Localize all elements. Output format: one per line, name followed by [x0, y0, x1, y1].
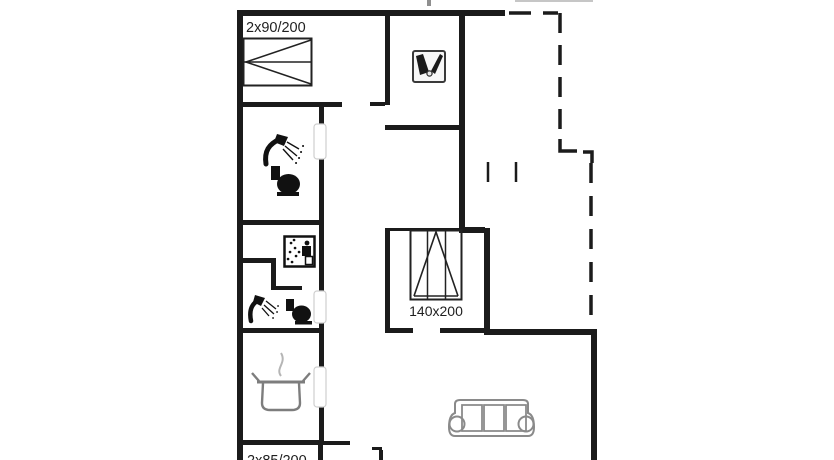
bed-frame — [411, 231, 462, 300]
shower-head — [274, 134, 288, 146]
dash-corner-2 — [583, 152, 592, 163]
sauna-stove — [306, 257, 313, 265]
dashed-boundary — [509, 13, 592, 328]
floor-plan-canvas: 2x90/200 — [0, 0, 834, 460]
door-kitchen — [314, 367, 326, 407]
sofa-cushions — [462, 405, 526, 431]
toilet-tank — [271, 166, 280, 180]
cutoff-mark — [427, 0, 431, 6]
double-bed-icon — [244, 39, 312, 86]
room-kitchen — [243, 333, 319, 439]
room-bathroom-1 — [243, 108, 319, 218]
toilet-icon — [271, 166, 300, 196]
door-bathroom-1 — [314, 124, 326, 159]
shower-spray — [262, 301, 276, 316]
bed-size-label-middle: 140x200 — [409, 303, 463, 319]
bed-side-lines — [428, 231, 446, 299]
door-bathroom-2 — [314, 291, 326, 323]
sauna-person-body — [302, 246, 311, 256]
toilet-bowl — [292, 306, 311, 323]
opening-ticks — [488, 162, 516, 182]
bed-size-label-bottom-clipped: 2x85/200 — [247, 453, 307, 460]
double-bed-icon-2 — [411, 231, 462, 300]
floor-plan: 2x90/200 — [0, 0, 834, 460]
toilet-icon-2 — [286, 299, 312, 325]
toilet-bowl — [277, 174, 300, 194]
shower-spray — [283, 142, 299, 160]
cutoff-line — [515, 0, 593, 2]
sofa-icon — [449, 400, 534, 436]
dash-corner-1 — [560, 139, 577, 151]
pot-body — [262, 383, 300, 410]
room-living-room — [324, 335, 591, 459]
cooking-pot-icon — [252, 353, 310, 410]
toilet-base — [277, 192, 299, 196]
sauna-person-head — [305, 241, 310, 246]
sauna-icon — [285, 237, 315, 267]
bed-size-label-top: 2x90/200 — [246, 20, 306, 36]
shower-icon — [266, 134, 304, 164]
shower-icon-2 — [250, 295, 278, 321]
utility-knob — [427, 71, 432, 76]
bed-duvet-lines — [414, 232, 458, 296]
toilet-base — [295, 321, 312, 325]
toilet-tank — [286, 299, 294, 311]
pot-steam — [279, 353, 282, 376]
utility-rack-icon — [413, 51, 445, 82]
